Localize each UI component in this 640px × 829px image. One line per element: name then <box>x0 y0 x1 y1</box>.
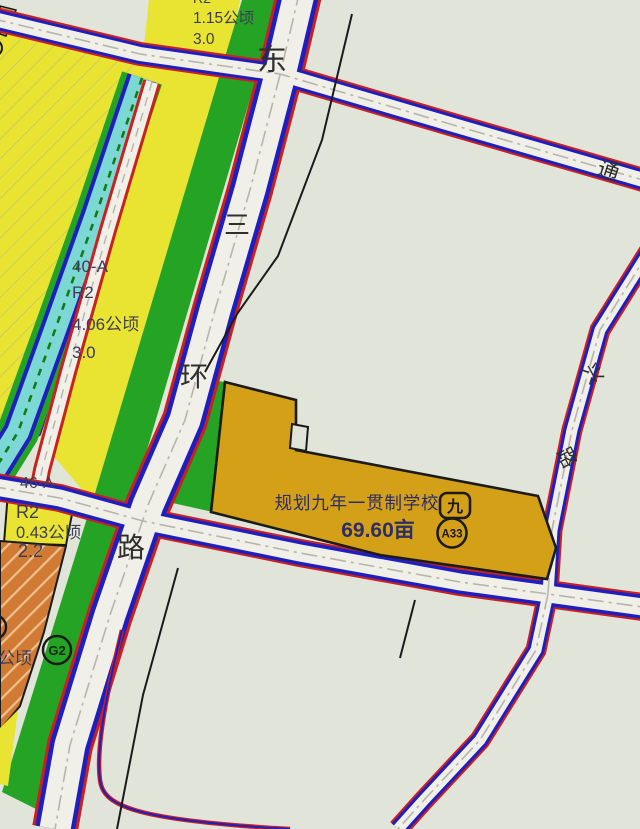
parcel-40a-area: 4.06公顷 <box>72 315 139 334</box>
parcel-46a-far: 2.2 <box>18 541 43 561</box>
school-code-badge-label: A33 <box>441 529 462 541</box>
school-name-label: 规划九年一贯制学校 <box>275 493 440 513</box>
parcel-46a-code: 46-A <box>20 475 54 492</box>
road-char-dong: 东 <box>257 44 287 77</box>
parcel-school-notch <box>290 424 308 451</box>
parcel-west-partial-area: 公顷 <box>0 649 32 668</box>
parcel-north-far: 3.0 <box>193 31 215 48</box>
parcel-46a-area: 0.43公顷 <box>16 523 81 542</box>
green-badge-label: G2 <box>48 643 65 658</box>
parcel-46a-use: R2 <box>16 502 39 522</box>
parcel-north-area: 1.15公顷 <box>193 9 254 27</box>
zoning-map: 九 A33 G2 规划九年一贯制学校 69.60亩 40-A R2 4.06公顷… <box>0 0 640 829</box>
parcel-40a-code: 40-A <box>72 257 109 276</box>
road-char-lu: 路 <box>117 532 145 564</box>
parcel-north-partial-code: R2 <box>193 0 211 6</box>
parcel-40a-far: 3.0 <box>72 343 96 362</box>
school-area-label: 69.60亩 <box>341 518 415 542</box>
parcel-40a-use: R2 <box>72 283 94 302</box>
road-char-huan: 环 <box>180 362 208 393</box>
road-char-san: 三 <box>224 211 250 240</box>
zoning-map-canvas: 九 A33 G2 规划九年一贯制学校 69.60亩 40-A R2 4.06公顷… <box>0 0 640 829</box>
school-block-badge-label: 九 <box>446 498 463 516</box>
